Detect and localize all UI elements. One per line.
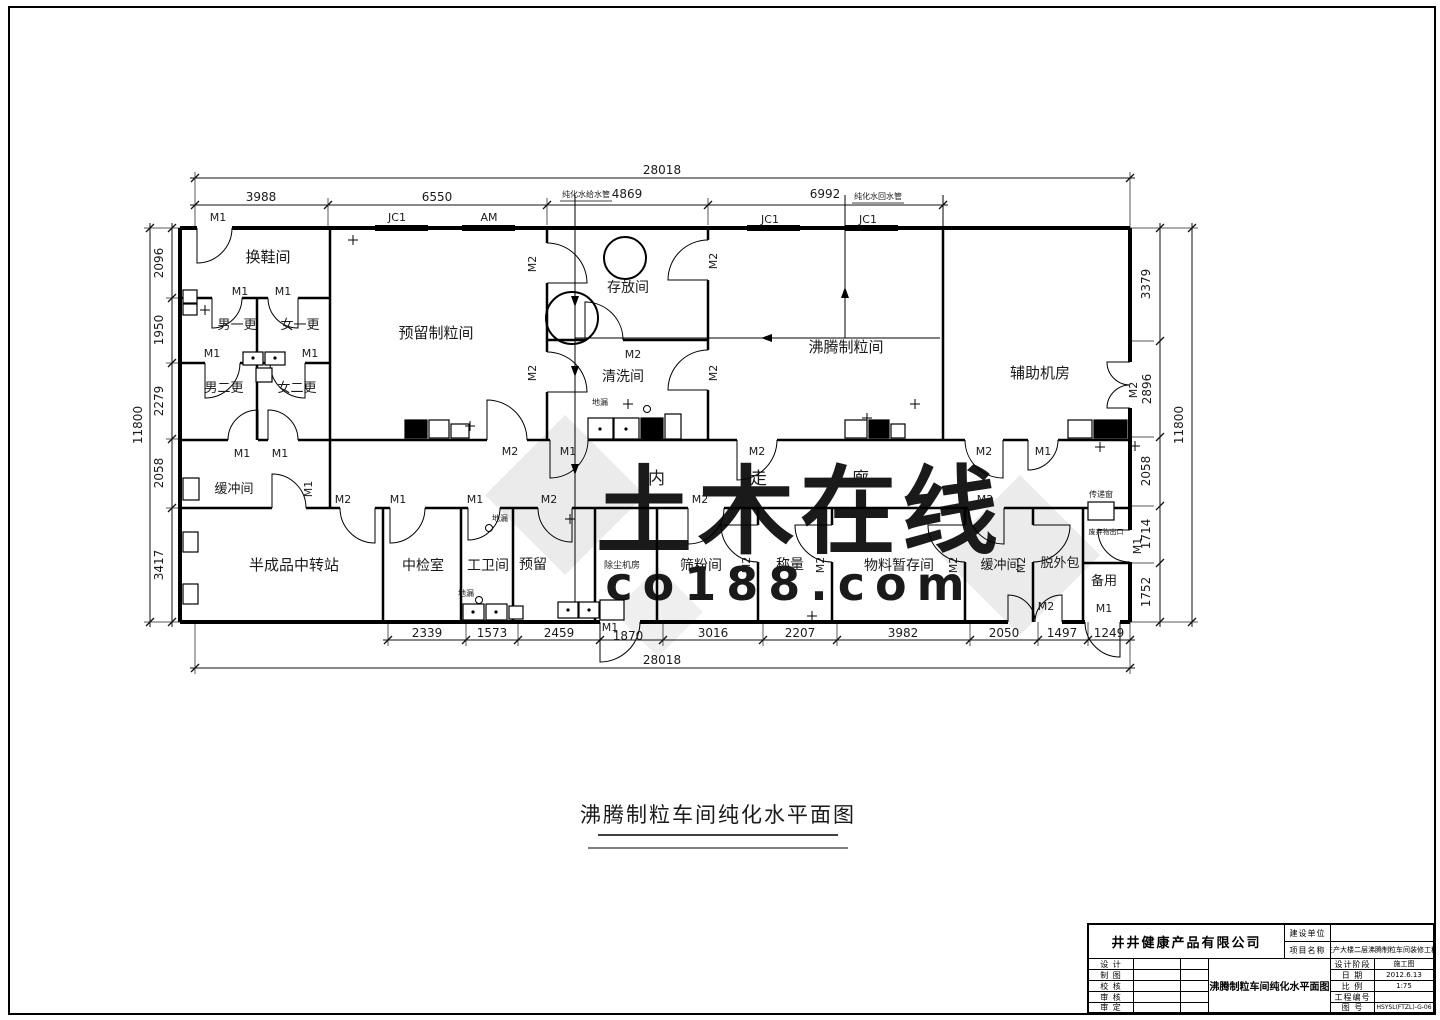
dim-top-total: 28018	[643, 163, 681, 177]
project-value: 生产大楼二层沸腾制粒车间装修工程	[1331, 942, 1434, 959]
dim-right-seg: 3379	[1139, 269, 1153, 300]
room-label-depack: 脱外包	[1040, 556, 1079, 571]
room-label-buffer-right: 缓冲间	[980, 558, 1019, 573]
project-label: 项目名称	[1285, 942, 1331, 959]
dim-right-seg: 1714	[1139, 519, 1153, 550]
door-label-m2: M2	[947, 557, 960, 574]
room-label-dust-room: 除尘机房	[604, 559, 640, 571]
floor-drain-note: 地漏	[492, 513, 508, 523]
dim-right-seg: 1752	[1139, 577, 1153, 608]
title-block-drawing-name: 沸腾制粒车间纯化水平面图	[1209, 959, 1331, 1013]
door-label-jc1: JC1	[387, 211, 406, 224]
arrow-down-icon	[571, 366, 579, 377]
door-label-am: AM	[480, 211, 497, 224]
dim-bottom-seg: 1870	[613, 629, 644, 643]
stage-label: 设计阶段	[1331, 959, 1375, 970]
door-label-m1: M1	[275, 285, 292, 298]
role-review: 审 核	[1089, 992, 1134, 1003]
room-label-storage: 存放间	[607, 280, 649, 296]
room-label-washing: 清洗间	[602, 369, 644, 385]
door-label-m2: M2	[692, 493, 709, 506]
door-label-m1: M1	[390, 493, 407, 506]
tank-circle	[604, 237, 646, 279]
company-name: 井井健康产品有限公司	[1089, 925, 1285, 959]
door-label-m1: M1	[232, 285, 249, 298]
dim-bottom-seg: 3016	[698, 626, 729, 640]
door-label-m2: M2	[335, 493, 352, 506]
dim-top-seg: 6550	[422, 190, 453, 204]
dim-bottom-seg: 1249	[1094, 626, 1125, 640]
dim-bottom-seg: 3982	[888, 626, 919, 640]
role-design: 设 计	[1089, 959, 1134, 970]
dim-bottom-seg: 1497	[1047, 626, 1078, 640]
door-label-m1: M1	[234, 447, 251, 460]
cad-drawing-page: 土木在线 co188.com	[0, 0, 1440, 1020]
role-cell-empty	[1181, 981, 1209, 992]
room-label-reserved-granulation: 预留制粒间	[398, 324, 473, 342]
dim-bottom-seg: 2050	[989, 626, 1020, 640]
door-label-m2: M2	[526, 256, 539, 273]
project-no-label: 工程编号	[1331, 992, 1375, 1003]
pipe-supply-note: 纯化水给水管	[562, 189, 610, 199]
door-label-m1: M1	[302, 347, 319, 360]
door-label-m1: M1	[467, 493, 484, 506]
arrow-left-icon	[761, 334, 772, 342]
door-label-m1: M1	[1096, 602, 1113, 615]
title-block: 井井健康产品有限公司 建设单位 项目名称 生产大楼二层沸腾制粒车间装修工程 设 …	[1087, 923, 1436, 1015]
dim-left-seg: 3417	[152, 550, 166, 581]
dim-left-seg: 2058	[152, 458, 166, 489]
role-cell-empty	[1134, 959, 1181, 970]
door-label-m1: M1	[560, 445, 577, 458]
door-label-jc1: JC1	[760, 213, 779, 226]
dim-left-seg: 1950	[152, 315, 166, 346]
room-label-shoe: 换鞋间	[245, 248, 290, 266]
role-cell-empty	[1134, 992, 1181, 1003]
room-label-women2: 女二更	[277, 380, 316, 396]
door-label-m2: M2	[740, 557, 753, 574]
dwg-no-label: 图 号	[1331, 1003, 1375, 1013]
door-label-m1: M1	[272, 447, 289, 460]
door-label-m1: M1	[302, 481, 315, 498]
door-label-m2: M2	[1015, 557, 1028, 574]
door-label-m2: M2	[749, 445, 766, 458]
room-label-men1: 男一更	[217, 318, 256, 333]
room-label-toilet: 工卫间	[467, 558, 509, 574]
door-label-m2: M2	[814, 557, 827, 574]
floor-plan-drawing: 土木在线 co188.com	[0, 0, 1440, 1020]
door-label-m2: M2	[977, 493, 994, 506]
dim-bottom-seg: 1573	[477, 626, 508, 640]
role-cell-empty	[1134, 970, 1181, 981]
arrow-down-icon	[571, 296, 579, 307]
dim-bottom-total: 28018	[643, 653, 681, 667]
door-label-m2: M2	[526, 365, 539, 382]
dim-left-total: 11800	[131, 406, 145, 444]
role-draw: 制 图	[1089, 970, 1134, 981]
owner-value	[1331, 925, 1434, 942]
floor-drain-note: 地漏	[592, 397, 608, 407]
door-label-m2: M2	[541, 493, 558, 506]
room-label-reserved: 预留	[519, 557, 547, 573]
door-label-m2: M2	[1127, 382, 1140, 399]
dim-top-seg: 3988	[246, 190, 277, 204]
role-cell-empty	[1134, 981, 1181, 992]
dim-bottom-seg: 2459	[544, 626, 575, 640]
dim-top-seg: 4869	[612, 187, 643, 201]
dim-left-seg: 2096	[152, 248, 166, 279]
dim-right-total: 11800	[1172, 406, 1186, 444]
role-cell-empty	[1181, 959, 1209, 970]
door-label-m2: M2	[976, 445, 993, 458]
door-label-m2: M2	[502, 445, 519, 458]
dim-top-seg: 6992	[810, 187, 841, 201]
stage-value: 施工图	[1375, 959, 1434, 970]
room-label-spare: 备用	[1091, 573, 1117, 589]
annotation-underlines	[560, 201, 904, 203]
room-label-weighing: 称量	[776, 557, 804, 573]
waste-exit-note: 废弃物出口	[1089, 527, 1124, 536]
owner-label: 建设单位	[1285, 925, 1331, 942]
door-label-m2: M2	[1038, 600, 1055, 613]
dim-right-seg: 2058	[1139, 456, 1153, 487]
pass-window-note: 传递窗	[1089, 489, 1113, 499]
role-cell-empty	[1181, 992, 1209, 1003]
room-label-buffer-left: 缓冲间	[214, 482, 253, 497]
tank-circle	[546, 292, 598, 344]
dwg-no-value: HSYSL(FTZL)-G-06	[1375, 1003, 1434, 1013]
room-label-women1: 女一更	[280, 317, 319, 333]
floor-drain-note: 地漏	[458, 588, 474, 598]
room-label-corridor: 内走廊	[648, 469, 954, 489]
room-label-semi-product: 半成品中转站	[249, 556, 339, 574]
role-cell-empty	[1134, 1003, 1181, 1013]
room-label-men2: 男二更	[204, 381, 243, 396]
role-cell-empty	[1181, 1003, 1209, 1013]
door-label-m1: M1	[204, 347, 221, 360]
room-label-sieve: 筛粉间	[680, 558, 722, 574]
role-approve: 审 定	[1089, 1003, 1134, 1013]
scale-label: 比 例	[1331, 981, 1375, 992]
door-label-m2: M2	[625, 348, 642, 361]
door-label-m2: M2	[707, 253, 720, 270]
role-check: 校 核	[1089, 981, 1134, 992]
room-label-fluidbed-granulation: 沸腾制粒间	[808, 338, 883, 356]
dim-left-seg: 2279	[152, 386, 166, 417]
drawing-title: 沸腾制粒车间纯化水平面图	[580, 803, 856, 827]
arrow-up-icon	[841, 287, 849, 298]
door-label-m2: M2	[707, 365, 720, 382]
scale-value: 1:75	[1375, 981, 1434, 992]
door-label-m1: M1	[210, 211, 227, 224]
date-value: 2012.6.13	[1375, 970, 1434, 981]
dim-right-seg: 2896	[1140, 374, 1154, 405]
role-cell-empty	[1181, 970, 1209, 981]
date-label: 日 期	[1331, 970, 1375, 981]
room-label-inspection: 中检室	[402, 557, 444, 574]
room-label-aux-machine-room: 辅助机房	[1010, 364, 1070, 382]
project-no-value	[1375, 992, 1434, 1003]
room-label-material-storage: 物料暂存间	[864, 558, 934, 574]
pipe-return-note: 纯化水回水管	[854, 191, 902, 201]
door-label-m1: M1	[1035, 445, 1052, 458]
dim-bottom-seg: 2207	[785, 626, 816, 640]
dim-bottom-seg: 2339	[412, 626, 443, 640]
door-label-jc1: JC1	[858, 213, 877, 226]
